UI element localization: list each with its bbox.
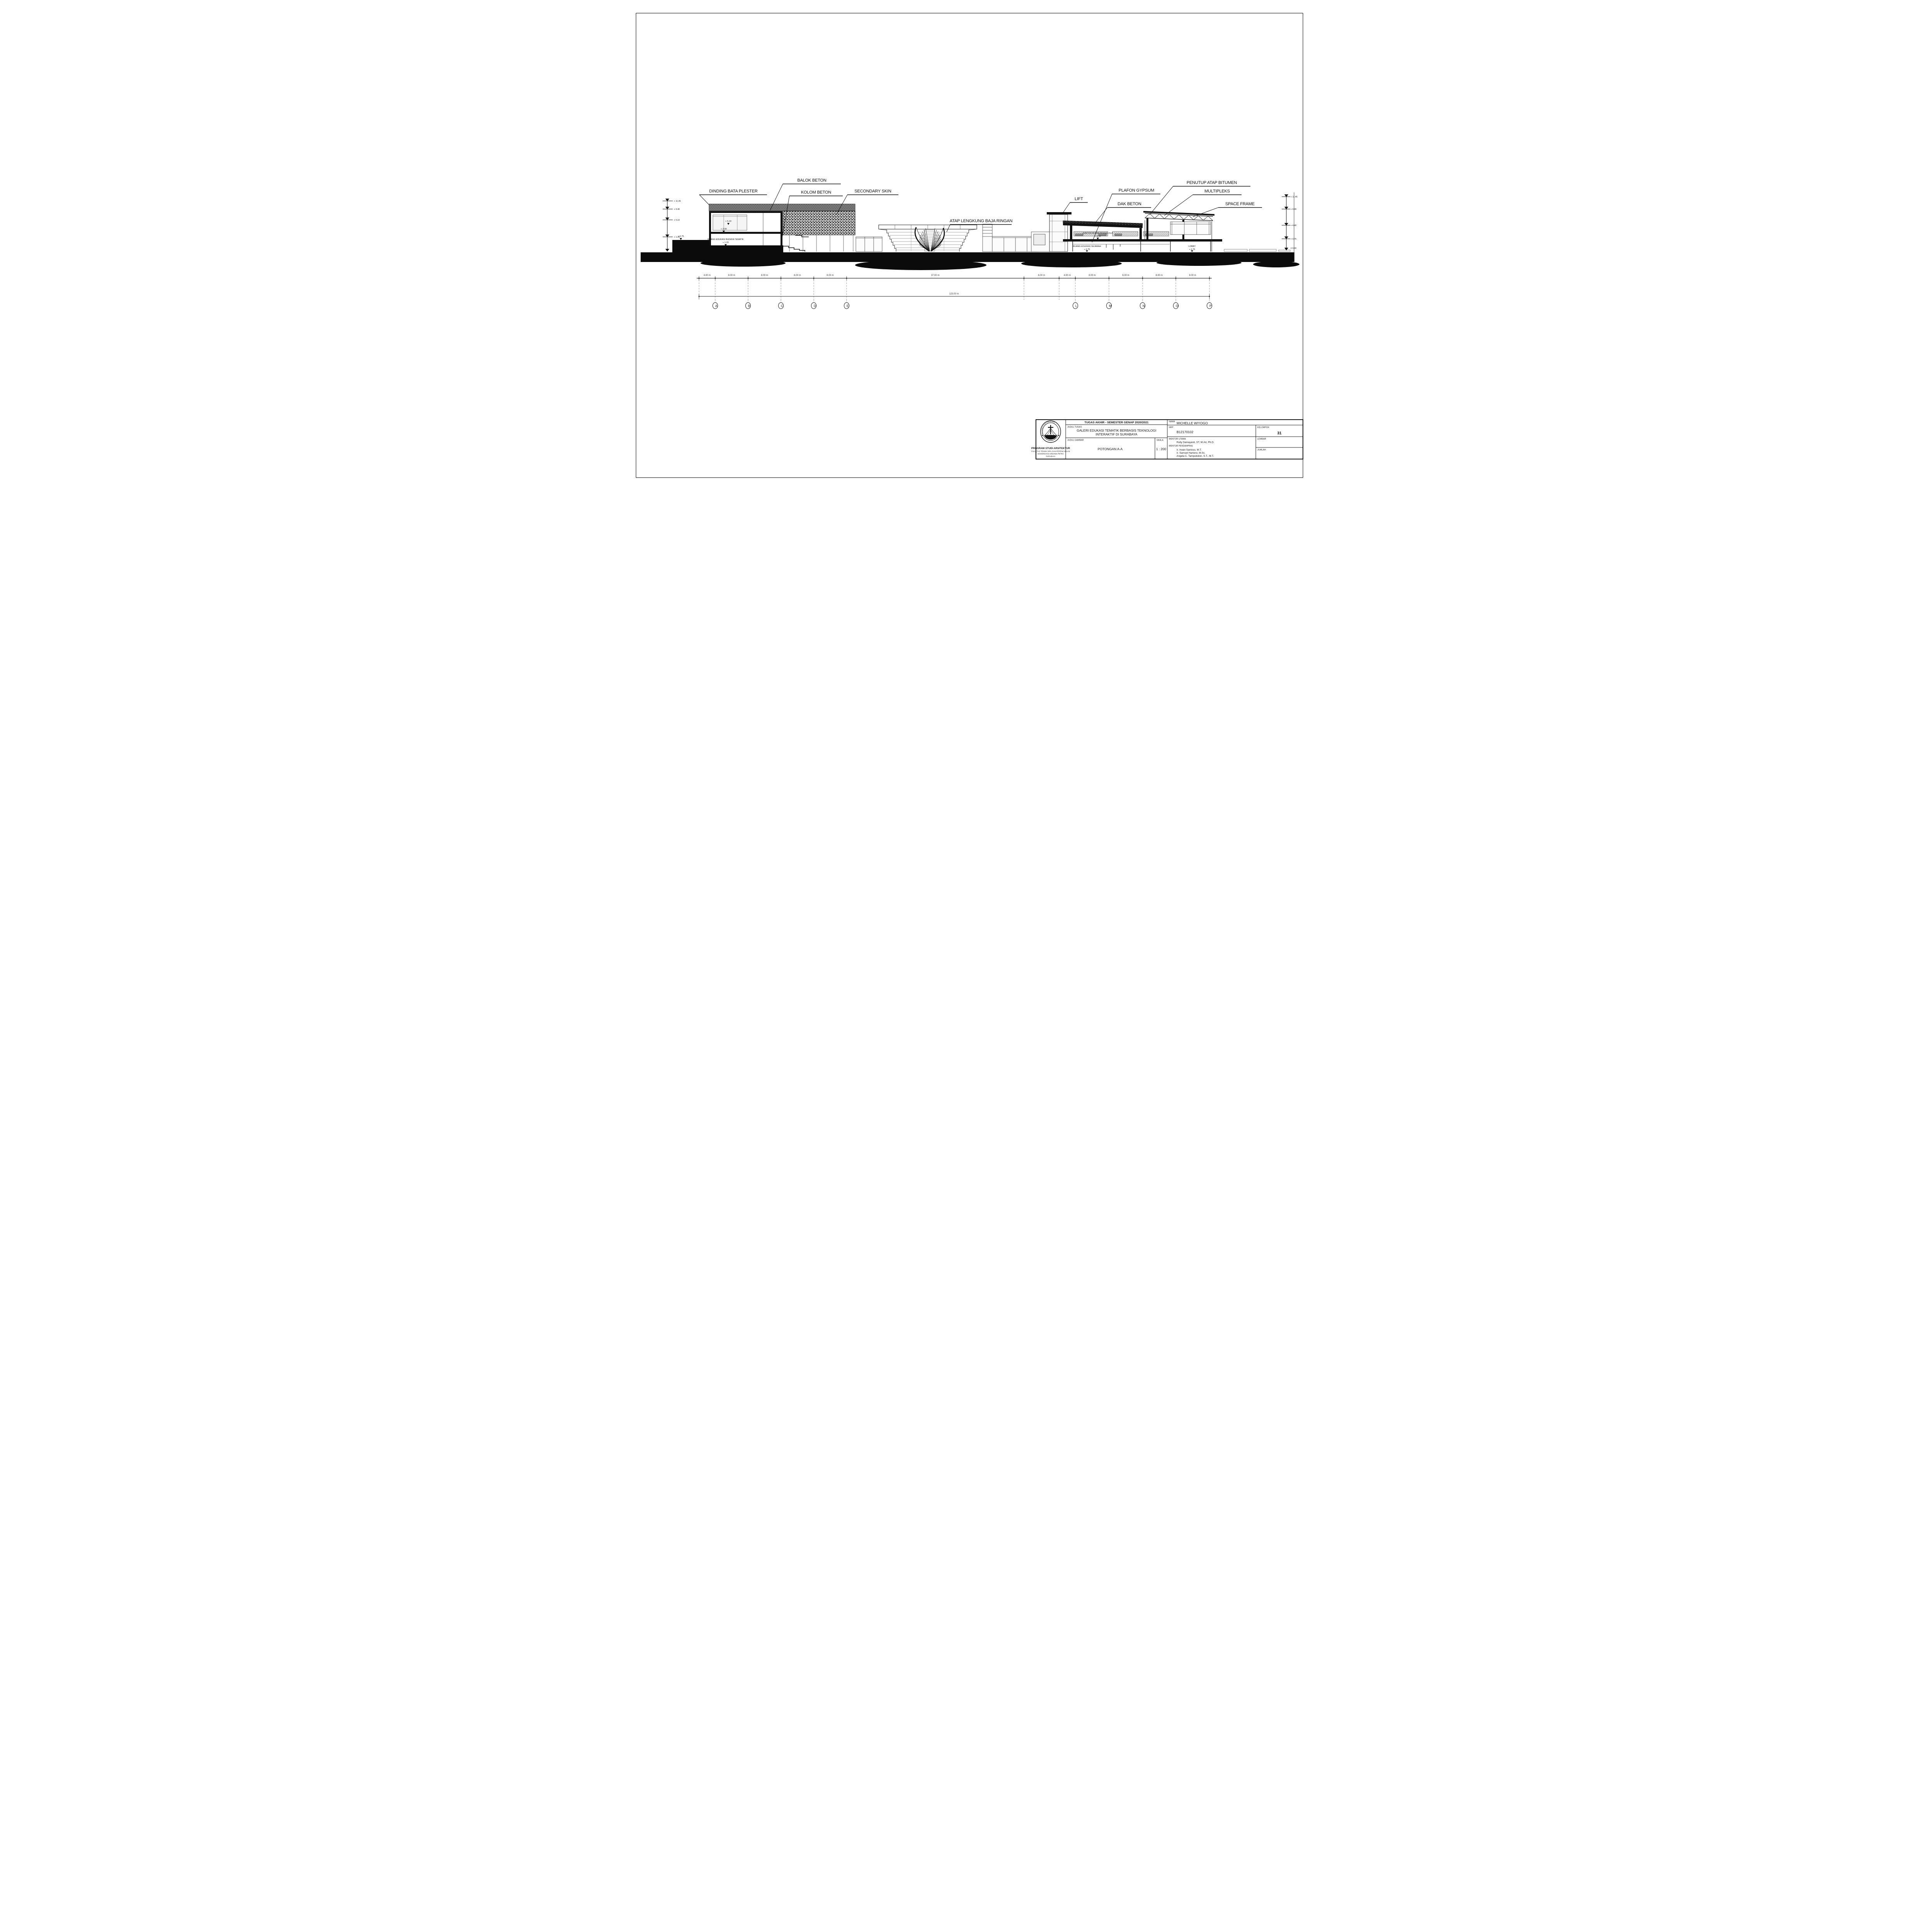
grid-letter: P	[1209, 304, 1211, 308]
nrp-label: NRP	[1169, 427, 1173, 429]
mentor-pendamping-3: Angela C. Tampubolon, S.T., M.T.	[1177, 455, 1214, 458]
callout-label: SECONDARY SKIN	[854, 189, 891, 194]
truss-post-1	[1146, 218, 1148, 239]
callout-label: PENUTUP ATAP BITUMEN	[1187, 180, 1237, 185]
room-name: LOBBY	[1189, 245, 1196, 248]
floor-slab-4-15	[1063, 239, 1222, 242]
institution-city: SURABAYA	[1046, 456, 1056, 458]
institution-name: PROGRAM STUDI ARSITEKTUR	[1031, 447, 1070, 450]
dimension-total-label: 123.00 m	[949, 293, 959, 295]
room-name: RUANG EDUKASI SEJARAH	[1073, 245, 1101, 248]
judul-gambar-value: POTONGAN A-A	[1098, 447, 1123, 451]
title-block: UNIVERSITAS KRISTEN PETRA PROGRAM STUDI …	[1031, 420, 1303, 459]
judul-gambar-label: JUDUL GAMBAR	[1067, 439, 1084, 442]
floor-slab-1-20	[709, 245, 783, 252]
nama-value: MICHELLE WIYOGO	[1177, 421, 1208, 425]
mentor-utama-value: Rully Damayanti, ST, M.Art, Ph.D.	[1177, 441, 1214, 444]
entrance-plinth	[672, 240, 709, 253]
room-level: + 1.20	[723, 242, 728, 244]
dimension-label: 8.00 m	[1088, 274, 1095, 277]
lift-tower	[1047, 212, 1071, 252]
elevation-label: + 11.45	[674, 200, 681, 202]
grid-letter: C	[781, 304, 783, 308]
level-mark: + 5.10	[725, 220, 731, 223]
jumlah-label: JUMLAH	[1257, 449, 1266, 451]
lift-cap-slab	[1047, 212, 1071, 214]
nama-label: NAMA	[1169, 421, 1175, 423]
kelompok-value: 31	[1277, 431, 1282, 435]
judul-tugas-value-2: INTERAKTIF DI SURABAYA	[1096, 432, 1138, 436]
dimension-label: 8.00 m	[827, 274, 833, 277]
dimension-label: 8.00 m	[1038, 274, 1045, 277]
skala-value: 1 : 200	[1156, 447, 1166, 451]
dimension-label: 37.00 m	[931, 274, 940, 277]
grid-letter: A	[715, 304, 718, 308]
grid-letter: M	[1109, 304, 1112, 308]
callout-label: DINDING BATA PLESTER	[709, 189, 757, 194]
skala-label: SKALA	[1156, 439, 1163, 442]
dimension-label: 8.00 m	[1156, 274, 1163, 277]
mentor-pendamping-2: Ir. Samuel Hartono, M.Sc.	[1177, 452, 1206, 454]
dimension-label: 8.00 m	[761, 274, 768, 277]
brick-parapet-band	[709, 204, 855, 211]
grid-letter: O	[1176, 304, 1178, 308]
judul-tugas-value: GALERI EDUKASI TEMATIK BERBASIS TEKNOLOG…	[1077, 429, 1156, 432]
grid-letter: L	[1075, 304, 1077, 308]
upper-window	[713, 215, 747, 230]
nrp-value: B12170102	[1177, 430, 1194, 434]
mentor-utama-label: MENTOR UTAMA	[1169, 438, 1186, 441]
secondary-skin-panel	[783, 211, 855, 235]
room-level: + 4.15	[1095, 235, 1100, 238]
callout-label: PLAFON GYPSUM	[1119, 188, 1154, 193]
curtain-wall	[1170, 222, 1211, 235]
dimension-label: 8.00 m	[1122, 274, 1129, 277]
callout-label: KOLOM BETON	[801, 190, 832, 195]
institution-faculty: FAKULTAS TEKNIK SIPIL DAN PERENCANAAN	[1031, 451, 1070, 452]
elevation-label: + 4.40	[1291, 225, 1296, 227]
dimension-label: 4.00 m	[704, 274, 711, 277]
section-drawing-svg: RUANG EDUKASI BUDAYA TEMATIK + 1.20 KANT…	[627, 0, 1305, 479]
drawing-sheet: RUANG EDUKASI BUDAYA TEMATIK + 1.20 KANT…	[627, 0, 1305, 479]
dimension-label: 4.00 m	[1064, 274, 1071, 277]
grid-letter: B	[748, 304, 750, 308]
elevation-label: + 9.40	[674, 208, 680, 211]
callout-label: LIFT	[1075, 197, 1083, 201]
dimension-label: 8.00 m	[728, 274, 735, 277]
title-header: TUGAS AKHIR - SEMESTER GENAP 2020/2021	[1085, 421, 1149, 424]
room-name: KANTOR ACARA PENGELOLA	[1083, 232, 1113, 235]
kelompok-label: KELOMPOK	[1257, 427, 1269, 429]
elevation-label: + 5.10	[674, 219, 680, 221]
dimension-label: 8.00 m	[794, 274, 801, 277]
grid-letter: N	[1143, 304, 1145, 308]
mentor-pendamping-1: Ir. Irwan Santoso, M.T.	[1177, 449, 1202, 451]
elevation-label: + 1.20	[674, 236, 680, 238]
mentor-pendamping-label: MENTOR PENDAMPING	[1169, 445, 1193, 447]
institution-university: UNIVERSITAS KRISTEN PETRA	[1037, 453, 1064, 455]
elevation-label: + 9.40	[1291, 208, 1296, 211]
roof-slab	[709, 211, 782, 213]
grid-letter: E	[847, 304, 849, 308]
level-mark: + 3.00	[721, 228, 726, 230]
callout-label: MULTIPLEKS	[1204, 189, 1230, 194]
elevation-label: ± 0.00	[1291, 247, 1296, 250]
callout-label: ATAP LENGKUNG BAJA RINGAN	[950, 219, 1013, 223]
callout-label: DAK BETON	[1117, 202, 1141, 206]
elevation-label: + 11.45	[1291, 196, 1298, 198]
callout-label: BALOK BETON	[797, 178, 826, 183]
column-cut-left	[1070, 225, 1072, 239]
dimension-label: 8.00 m	[1189, 274, 1196, 277]
grid-letter: D	[814, 304, 816, 308]
room-name: RUANG EDUKASI BUDAYA TEMATIK	[707, 238, 744, 241]
column-cut-right	[1139, 228, 1142, 239]
elevation-label: + 0.75	[1291, 238, 1296, 240]
floor-slab-3-00	[711, 232, 789, 234]
lembar-label: LEMBAR	[1257, 438, 1266, 441]
low-podium	[856, 237, 882, 252]
callout-label: SPACE FRAME	[1225, 202, 1255, 206]
judul-tugas-label: JUDUL TUGAS	[1067, 426, 1082, 429]
amphitheater	[879, 225, 977, 252]
elevation-label: + 0.30	[674, 247, 680, 249]
